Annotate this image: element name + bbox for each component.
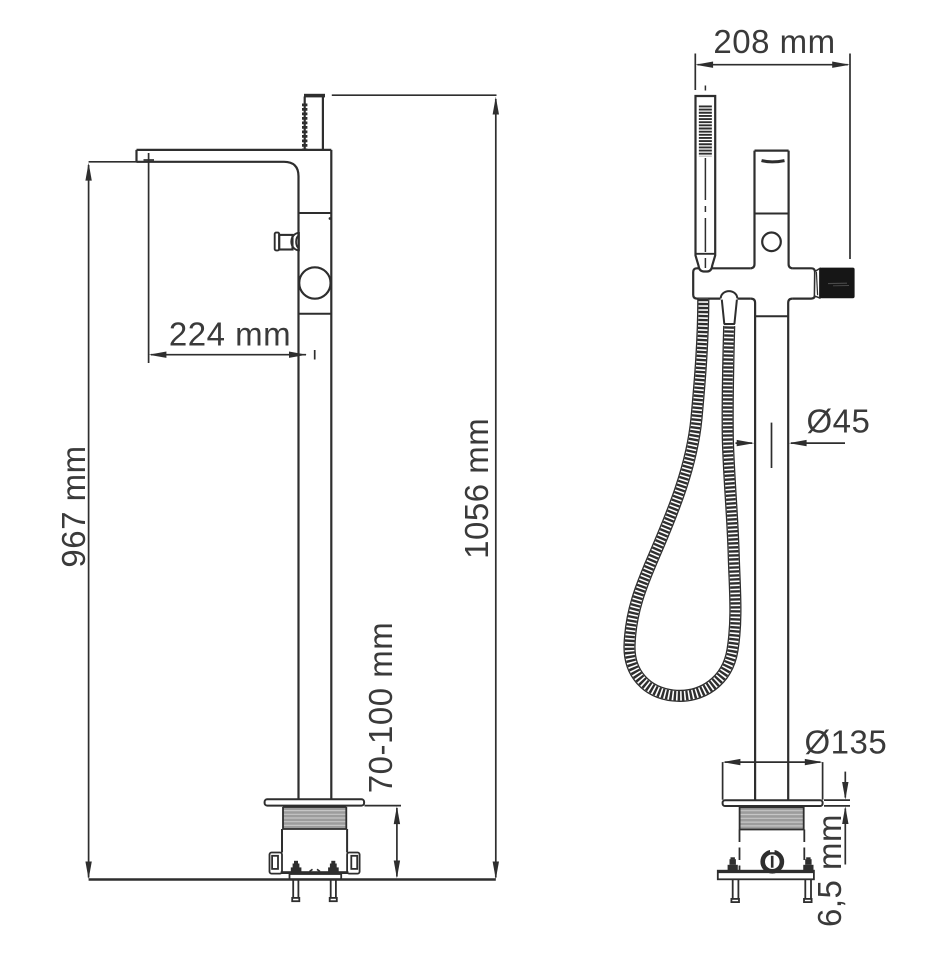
svg-text:Ø45: Ø45 <box>807 403 871 440</box>
svg-text:224 mm: 224 mm <box>169 316 291 353</box>
svg-text:1056 mm: 1056 mm <box>458 418 495 559</box>
svg-text:6,5 mm: 6,5 mm <box>811 814 848 927</box>
svg-text:70-100 mm: 70-100 mm <box>362 622 399 793</box>
svg-text:208 mm: 208 mm <box>713 23 835 60</box>
svg-text:Ø135: Ø135 <box>805 724 888 761</box>
svg-text:967 mm: 967 mm <box>55 445 92 567</box>
